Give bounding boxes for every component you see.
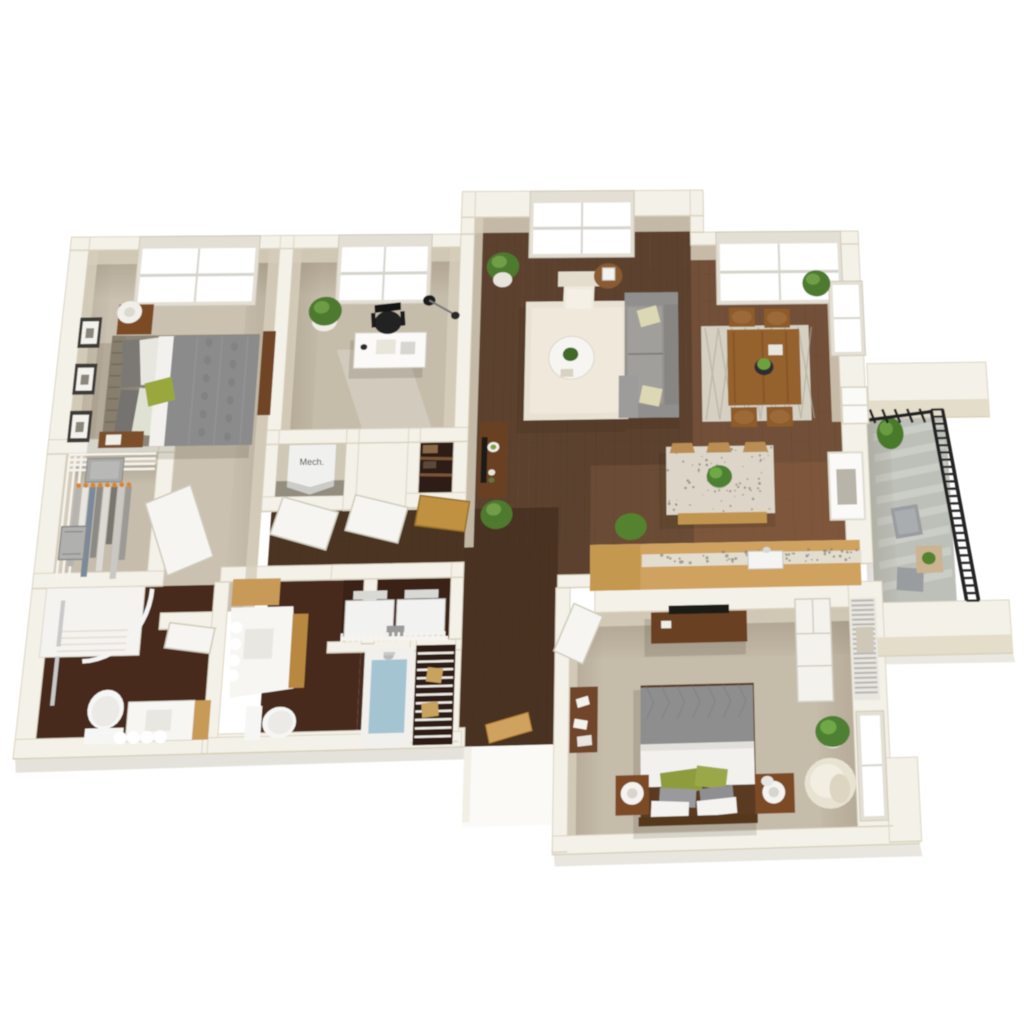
svg-text:Mech.: Mech.: [300, 457, 325, 467]
